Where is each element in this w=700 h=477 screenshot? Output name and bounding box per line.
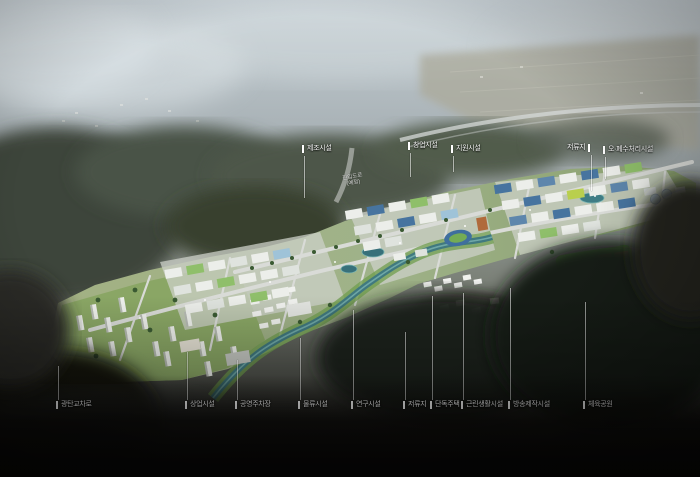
label-marker	[302, 145, 304, 153]
leader-line	[591, 155, 592, 191]
label-marker	[298, 401, 300, 409]
leader-line	[237, 360, 238, 400]
label-marker	[588, 144, 590, 152]
label-marker	[351, 401, 353, 409]
logistics-facility-label: 물류시설	[298, 401, 328, 409]
label-marker	[583, 401, 585, 409]
aerial-masterplan-view: 제조시설 창업시설 지원시설 저류지 오·폐수처리시설 광탄교차로 상업시설 공…	[0, 0, 700, 477]
leader-line	[405, 332, 406, 400]
support-facility-label: 지원시설	[451, 145, 481, 153]
public-parking-label: 공영주차장	[235, 401, 271, 409]
leader-line	[510, 288, 511, 400]
callout-text: 물류시설	[303, 401, 328, 409]
callout-text: 방송제작시설	[513, 401, 550, 409]
leader-line	[353, 310, 354, 400]
leader-line	[187, 352, 188, 400]
leader-line	[300, 338, 301, 400]
leader-line	[432, 296, 433, 400]
callout-text: 광탄교차로	[61, 401, 92, 409]
leader-line	[453, 156, 454, 172]
callout-text: 상업시설	[190, 401, 215, 409]
interchange-label: 광탄교차로	[56, 401, 92, 409]
callout-text: 저류지	[408, 401, 426, 409]
neighborhood-facility-label: 근린생활시설	[461, 401, 503, 409]
label-marker	[430, 401, 432, 409]
callout-text: 연구시설	[356, 401, 381, 409]
research-facility-label: 연구시설	[351, 401, 381, 409]
retention-pond-label-top: 저류지	[567, 144, 590, 152]
label-marker	[508, 401, 510, 409]
callout-text: 창업시설	[413, 142, 438, 150]
leader-line	[304, 156, 305, 198]
sports-park-label: 체육공원	[583, 401, 613, 409]
commercial-facility-label: 상업시설	[185, 401, 215, 409]
leader-line	[410, 153, 411, 177]
label-marker	[408, 142, 410, 150]
startup-facility-label: 창업시설	[408, 142, 438, 150]
leader-line	[58, 366, 59, 400]
callout-text: 공영주차장	[240, 401, 271, 409]
detached-housing-label: 단독주택	[430, 401, 460, 409]
callout-text: 근린생활시설	[466, 401, 503, 409]
label-marker	[56, 401, 58, 409]
callout-text: 오·폐수처리시설	[608, 146, 653, 154]
broadcast-production-label: 방송제작시설	[508, 401, 550, 409]
wastewater-treatment-label: 오·폐수처리시설	[603, 146, 653, 154]
leader-line	[463, 293, 464, 400]
retention-pond-label-bottom: 저류지	[403, 401, 426, 409]
callout-text: 제조시설	[307, 145, 332, 153]
callout-text: 지원시설	[456, 145, 481, 153]
manufacturing-facility-label: 제조시설	[302, 145, 332, 153]
callout-text: 단독주택	[435, 401, 460, 409]
label-marker	[451, 145, 453, 153]
label-marker	[403, 401, 405, 409]
label-marker	[603, 146, 605, 154]
callout-text: 저류지	[567, 144, 585, 152]
callout-text: 체육공원	[588, 401, 613, 409]
leader-line	[605, 157, 606, 179]
label-marker	[461, 401, 463, 409]
label-marker	[185, 401, 187, 409]
leader-line	[585, 302, 586, 400]
label-marker	[235, 401, 237, 409]
